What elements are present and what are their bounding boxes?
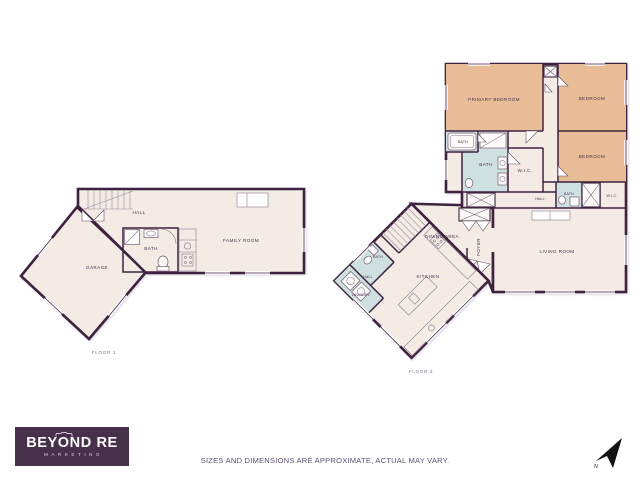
hall-strip-closet (544, 66, 557, 77)
logo-brand-text: BEYOND RE (26, 436, 118, 451)
family-room-label: FAMILY ROOM (223, 238, 259, 243)
dining-area-label: DINING AREA (425, 234, 460, 239)
hall-lower-label: HALL (363, 275, 373, 279)
bedroom-mid-label: BEDROOM (579, 154, 606, 159)
wic-right-label: W.I.C. (607, 194, 618, 198)
bath-right-closet (582, 183, 600, 207)
bath-main-label: BATH (479, 162, 493, 167)
floor1-title: FLOOR 1 (92, 350, 116, 355)
garage-label: GARAGE (86, 265, 108, 270)
bath-small-label: BATH (458, 140, 468, 144)
logo-tagline: MARKETING (41, 453, 103, 458)
kitchen-label: KITCHEN (417, 274, 440, 279)
living-room-fireplace (532, 211, 570, 220)
living-room-label: LIVING ROOM (539, 249, 574, 254)
disclaimer-text: SIZES AND DIMENSIONS ARE APPROXIMATE, AC… (160, 456, 490, 465)
floor1-bath-label: BATH (144, 246, 158, 251)
wic-main-label: W.I.C. (518, 168, 533, 173)
hall-upper-label: HALL (535, 197, 545, 201)
north-arrow: N (594, 438, 622, 470)
linen-closet (467, 193, 495, 207)
floor1-hall-label: HALL (132, 210, 145, 215)
camera-icon (55, 432, 73, 437)
foyer-label: FOYER (476, 238, 481, 256)
laundry-label: LAUNDRY (352, 293, 371, 297)
primary-bedroom-label: PRIMARY BEDROOM (468, 97, 520, 102)
floorplan-canvas: GARAGE HALL BATH FAMILY ROOM FLOOR 1 (0, 0, 640, 480)
floor2-plan: PRIMARY BEDROOM BEDROOM BEDROOM BATH BAT… (334, 64, 626, 358)
floor2-title: FLOOR 2 (409, 369, 433, 374)
bath-lower-label: BATH (373, 255, 383, 259)
floor1-fireplace (237, 193, 268, 207)
floor1-plan: GARAGE HALL BATH FAMILY ROOM (21, 189, 304, 339)
north-label: N (594, 464, 598, 470)
bath-right-label: BATH (564, 192, 574, 196)
floorplan-page: GARAGE HALL BATH FAMILY ROOM FLOOR 1 (0, 0, 640, 480)
beyond-re-logo: BEYOND RE MARKETING (15, 427, 129, 466)
north-arrow-icon (596, 438, 622, 468)
bedroom-top-label: BEDROOM (579, 96, 606, 101)
